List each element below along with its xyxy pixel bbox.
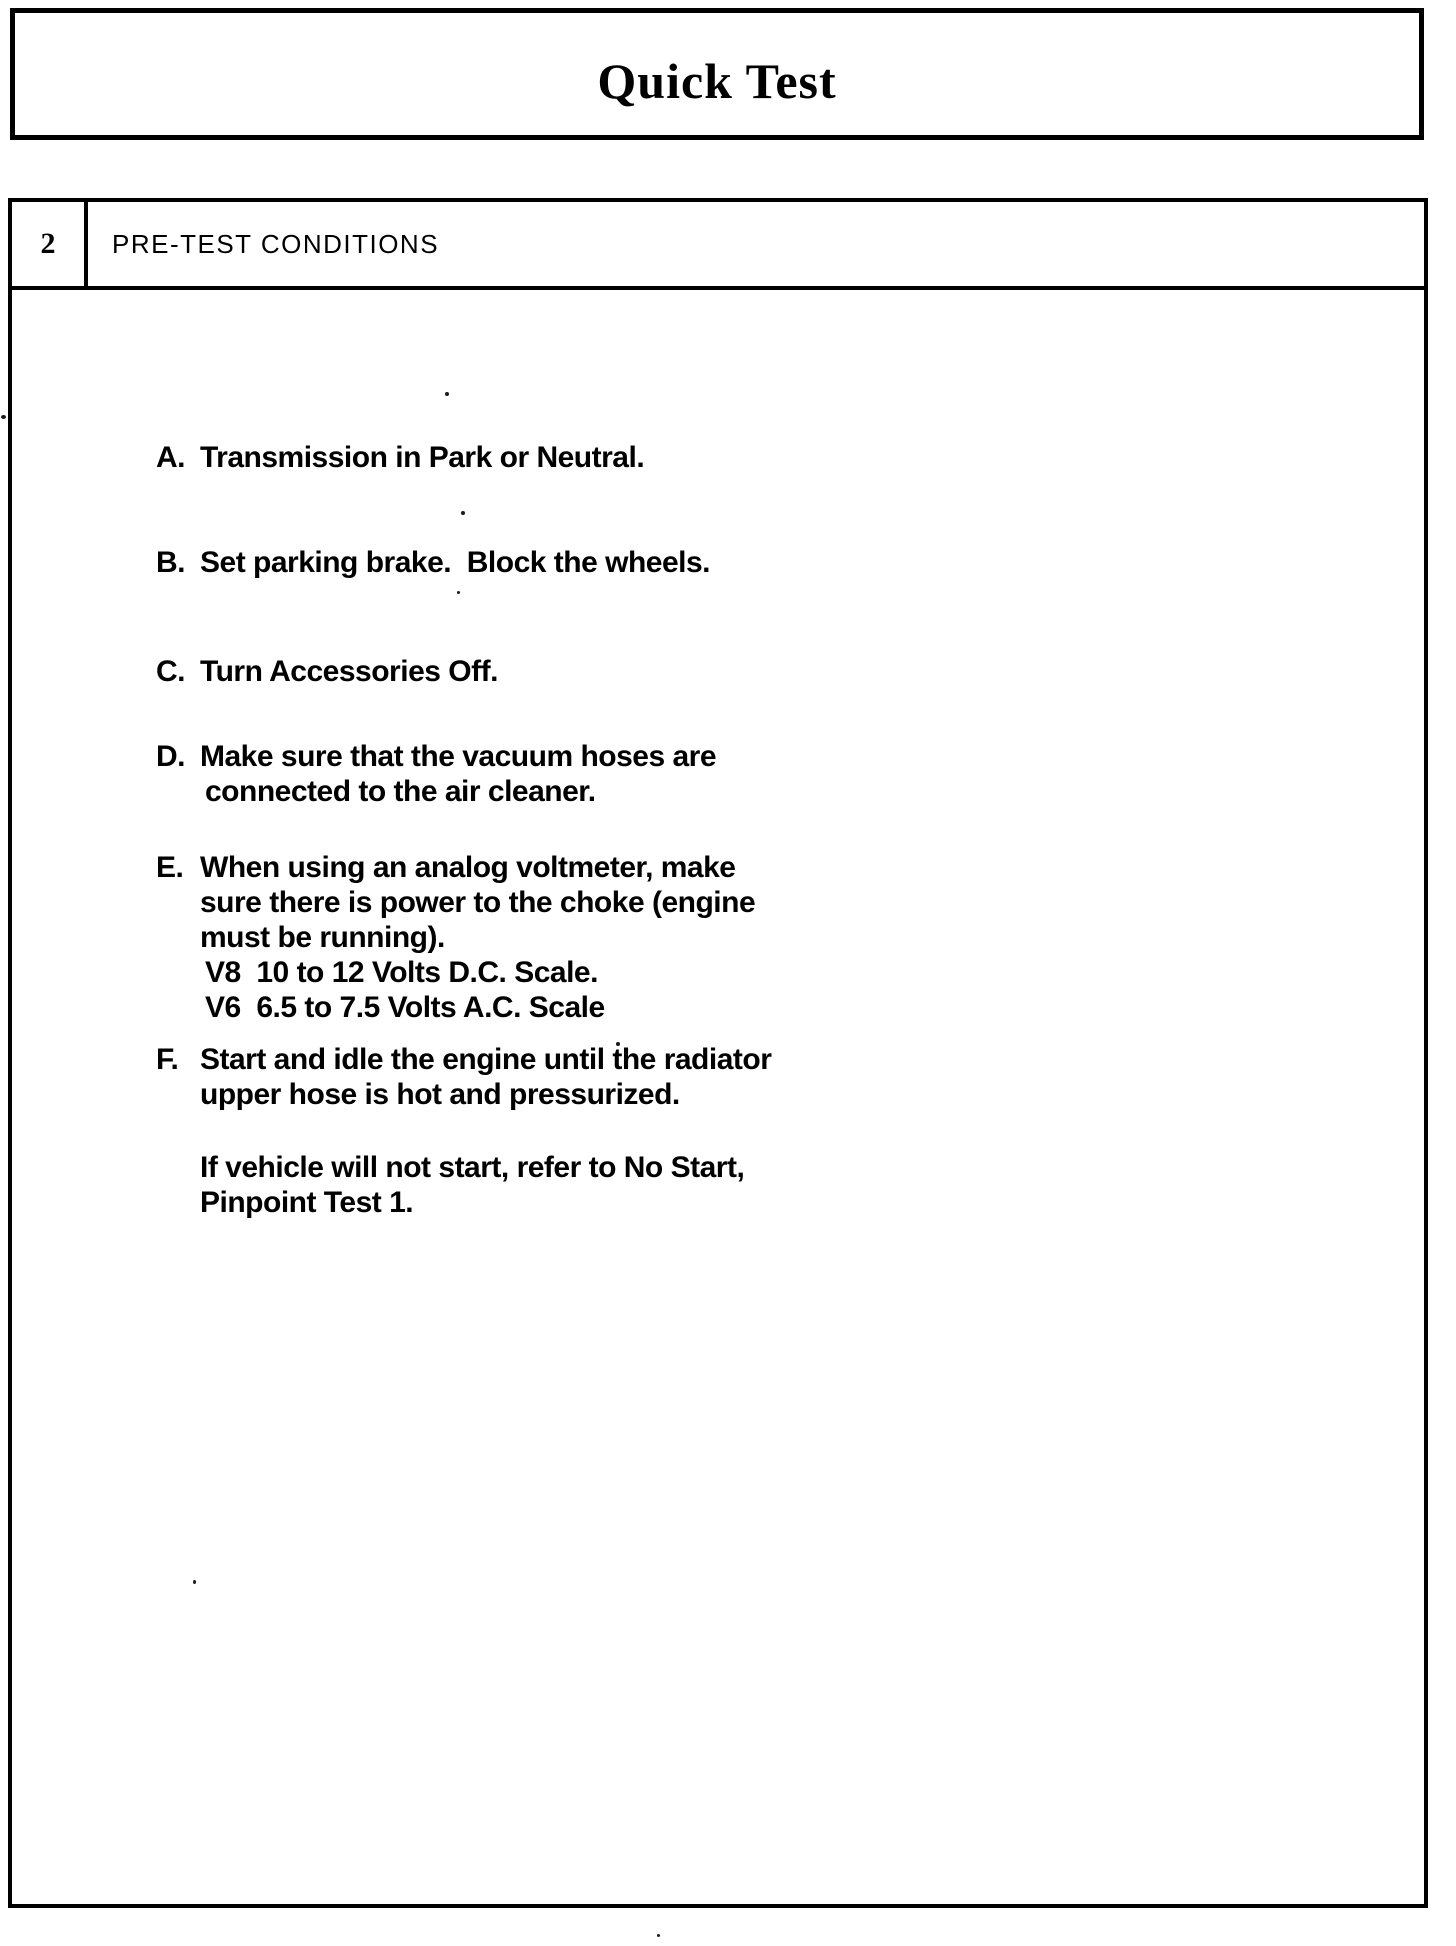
condition-item-a: A. Transmission in Park or Neutral. — [156, 440, 644, 475]
section-header-row: 2 PRE-TEST CONDITIONS — [12, 202, 1424, 290]
title-box: Quick Test — [10, 8, 1424, 140]
scan-artifact-dot — [616, 1042, 620, 1046]
scan-artifact-dot — [193, 1580, 196, 1584]
item-text: Transmission in Park or Neutral. — [200, 440, 644, 475]
scan-artifact-dot — [657, 1934, 660, 1937]
item-line: upper hose is hot and pressurized. — [200, 1077, 771, 1112]
item-label: B. — [156, 545, 200, 580]
item-text: Start and idle the engine until the radi… — [200, 1042, 771, 1112]
condition-item-b: B. Set parking brake. Block the wheels. — [156, 545, 710, 580]
item-text: Turn Accessories Off. — [200, 654, 498, 689]
item-text: Set parking brake. Block the wheels. — [200, 545, 710, 580]
scan-artifact-dot — [461, 511, 465, 515]
note-line: If vehicle will not start, refer to No S… — [200, 1150, 744, 1185]
item-label: E. — [156, 850, 200, 1025]
scan-artifact-dot — [445, 392, 449, 396]
condition-item-f: F. Start and idle the engine until the r… — [156, 1042, 771, 1112]
item-label: A. — [156, 440, 200, 475]
item-text: When using an analog voltmeter, make sur… — [200, 850, 755, 1025]
item-line: V8 10 to 12 Volts D.C. Scale. — [200, 955, 755, 990]
section-number: 2 — [41, 227, 56, 261]
item-line: When using an analog voltmeter, make — [200, 850, 755, 885]
condition-item-c: C. Turn Accessories Off. — [156, 654, 498, 689]
section-box: 2 PRE-TEST CONDITIONS A. Transmission in… — [8, 198, 1428, 1908]
section-number-cell: 2 — [12, 202, 88, 286]
no-start-note: If vehicle will not start, refer to No S… — [200, 1150, 744, 1220]
condition-item-e: E. When using an analog voltmeter, make … — [156, 850, 755, 1025]
item-line: Transmission in Park or Neutral. — [200, 440, 644, 475]
scan-artifact-dot — [1, 415, 6, 419]
item-line: Make sure that the vacuum hoses are — [200, 739, 716, 774]
item-line: Set parking brake. Block the wheels. — [200, 545, 710, 580]
scanned-manual-page: Quick Test 2 PRE-TEST CONDITIONS A. Tran… — [0, 0, 1456, 1946]
item-line: must be running). — [200, 920, 755, 955]
item-line: V6 6.5 to 7.5 Volts A.C. Scale — [200, 990, 755, 1025]
page-title: Quick Test — [597, 38, 836, 110]
item-line: sure there is power to the choke (engine — [200, 885, 755, 920]
item-line: Start and idle the engine until the radi… — [200, 1042, 771, 1077]
item-line: Turn Accessories Off. — [200, 654, 498, 689]
note-line: Pinpoint Test 1. — [200, 1185, 744, 1220]
item-label: C. — [156, 654, 200, 689]
item-line: connected to the air cleaner. — [200, 774, 716, 809]
condition-item-d: D. Make sure that the vacuum hoses are c… — [156, 739, 716, 809]
item-text: Make sure that the vacuum hoses are conn… — [200, 739, 716, 809]
item-label: F. — [156, 1042, 200, 1112]
scan-artifact-dot — [457, 591, 460, 594]
section-heading: PRE-TEST CONDITIONS — [112, 229, 439, 260]
item-label: D. — [156, 739, 200, 809]
